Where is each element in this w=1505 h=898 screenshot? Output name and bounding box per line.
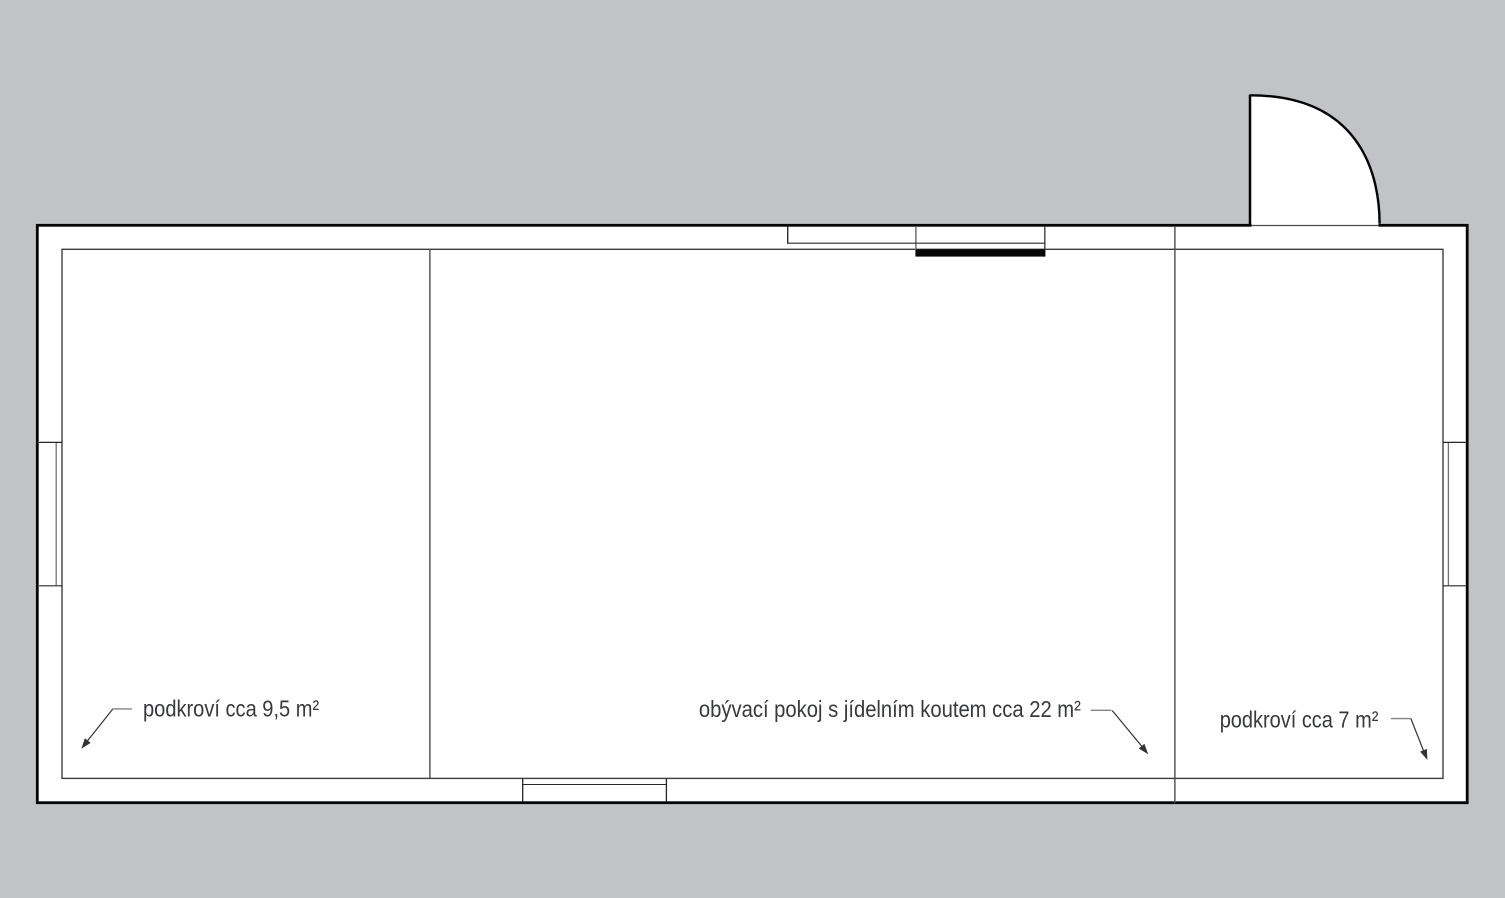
svg-text:obývací pokoj s jídelním koute: obývací pokoj s jídelním koutem cca 22 m…: [699, 696, 1081, 723]
svg-text:podkroví cca 7 m²: podkroví cca 7 m²: [1220, 706, 1379, 733]
svg-text:podkroví cca 9,5 m²: podkroví cca 9,5 m²: [143, 695, 319, 722]
